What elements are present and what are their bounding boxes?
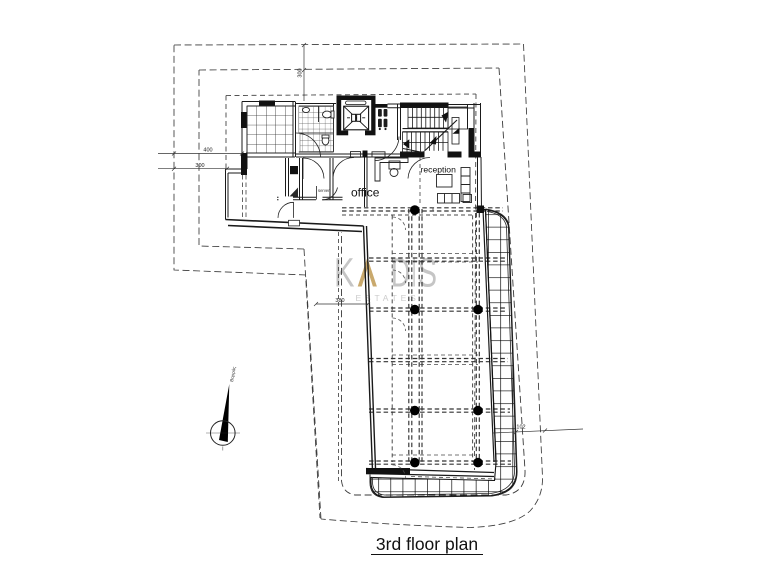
svg-text:300: 300 — [298, 68, 304, 77]
svg-text:K: K — [334, 250, 355, 296]
svg-text:ESTATES: ESTATES — [356, 293, 420, 303]
svg-text:300: 300 — [195, 163, 204, 169]
svg-text:S: S — [418, 250, 437, 296]
svg-text:office: office — [351, 186, 380, 200]
svg-text:reception: reception — [421, 165, 457, 175]
svg-text:server: server — [318, 188, 330, 193]
svg-text:Βορράς: Βορράς — [228, 365, 237, 382]
svg-text:102: 102 — [516, 425, 525, 431]
svg-text:3rd floor plan: 3rd floor plan — [376, 534, 478, 554]
svg-text:380: 380 — [335, 298, 344, 304]
svg-text:I: I — [412, 250, 416, 296]
svg-text:400: 400 — [203, 148, 212, 154]
